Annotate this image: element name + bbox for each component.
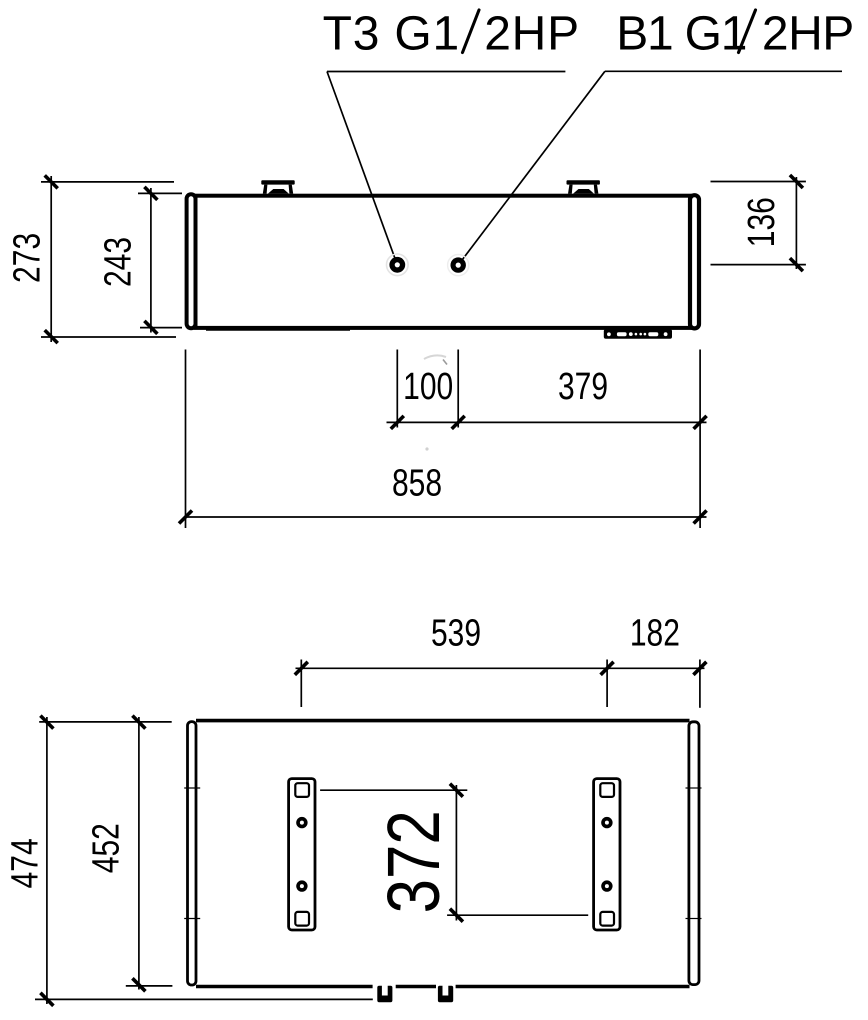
svg-text:539: 539 xyxy=(431,612,481,654)
svg-text:T3 G1: T3 G1 xyxy=(323,8,460,61)
svg-text:452: 452 xyxy=(85,823,127,873)
svg-text:273: 273 xyxy=(6,233,48,283)
svg-text:243: 243 xyxy=(97,237,139,287)
svg-text:2HP: 2HP xyxy=(484,8,580,61)
svg-text:136: 136 xyxy=(741,197,783,247)
svg-text:474: 474 xyxy=(4,838,46,888)
svg-text:2HP: 2HP xyxy=(762,8,854,61)
svg-text:858: 858 xyxy=(392,462,442,504)
svg-text:182: 182 xyxy=(630,612,680,654)
svg-text:100: 100 xyxy=(403,366,453,408)
svg-text:372: 372 xyxy=(373,810,456,913)
svg-text:379: 379 xyxy=(558,366,608,408)
svg-text:B1 G1: B1 G1 xyxy=(616,8,746,61)
